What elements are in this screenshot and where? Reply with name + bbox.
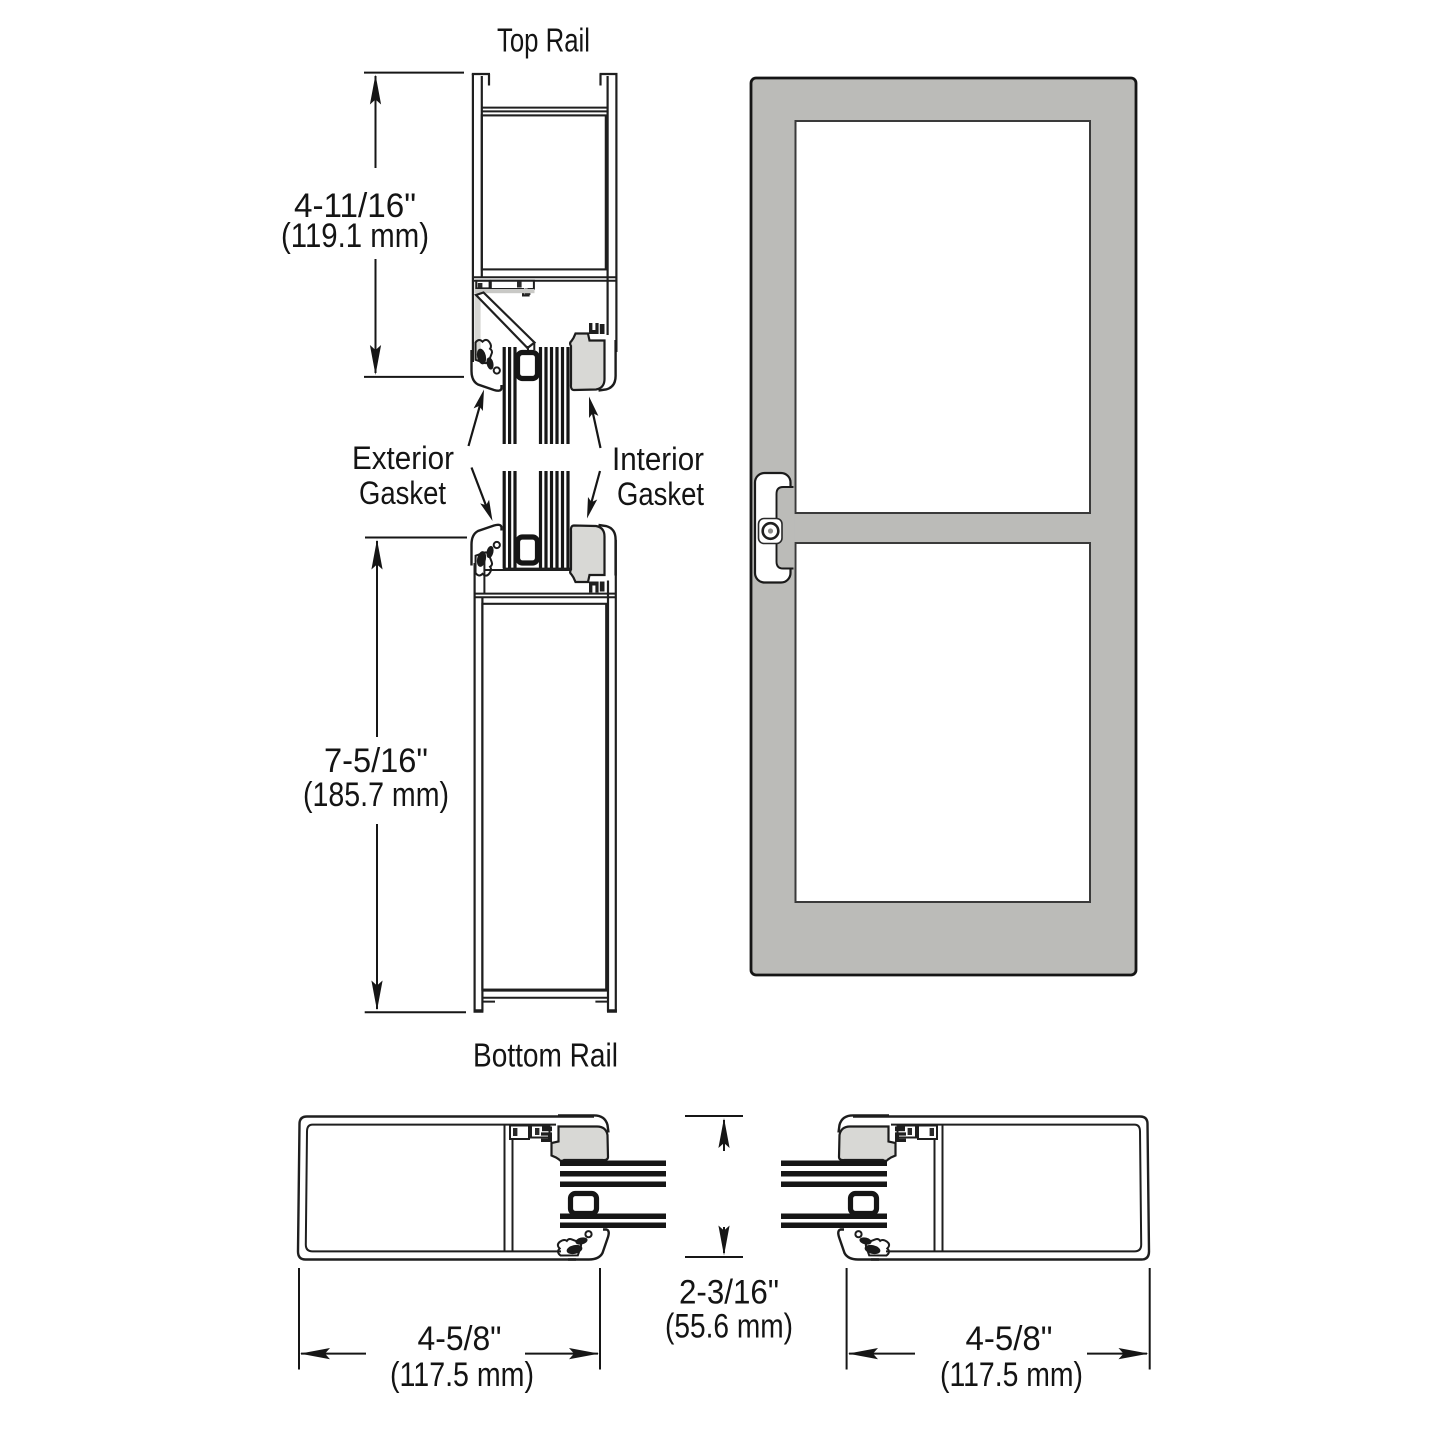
- svg-text:Gasket: Gasket: [617, 476, 704, 512]
- svg-text:(117.5 mm): (117.5 mm): [940, 1356, 1083, 1394]
- svg-text:Interior: Interior: [612, 441, 704, 477]
- svg-text:4-5/8": 4-5/8": [966, 1320, 1053, 1358]
- svg-text:Bottom Rail: Bottom Rail: [473, 1038, 618, 1075]
- svg-text:2-3/16": 2-3/16": [679, 1274, 779, 1312]
- svg-text:(185.7 mm): (185.7 mm): [303, 776, 449, 814]
- svg-text:Exterior: Exterior: [352, 440, 454, 476]
- svg-text:(117.5 mm): (117.5 mm): [390, 1356, 534, 1394]
- svg-text:(119.1 mm): (119.1 mm): [281, 217, 429, 255]
- svg-text:(55.6 mm): (55.6 mm): [665, 1308, 793, 1346]
- svg-text:4-5/8": 4-5/8": [418, 1320, 502, 1358]
- svg-text:Gasket: Gasket: [359, 475, 446, 511]
- svg-text:7-5/16": 7-5/16": [324, 742, 428, 780]
- svg-text:Top Rail: Top Rail: [497, 22, 590, 59]
